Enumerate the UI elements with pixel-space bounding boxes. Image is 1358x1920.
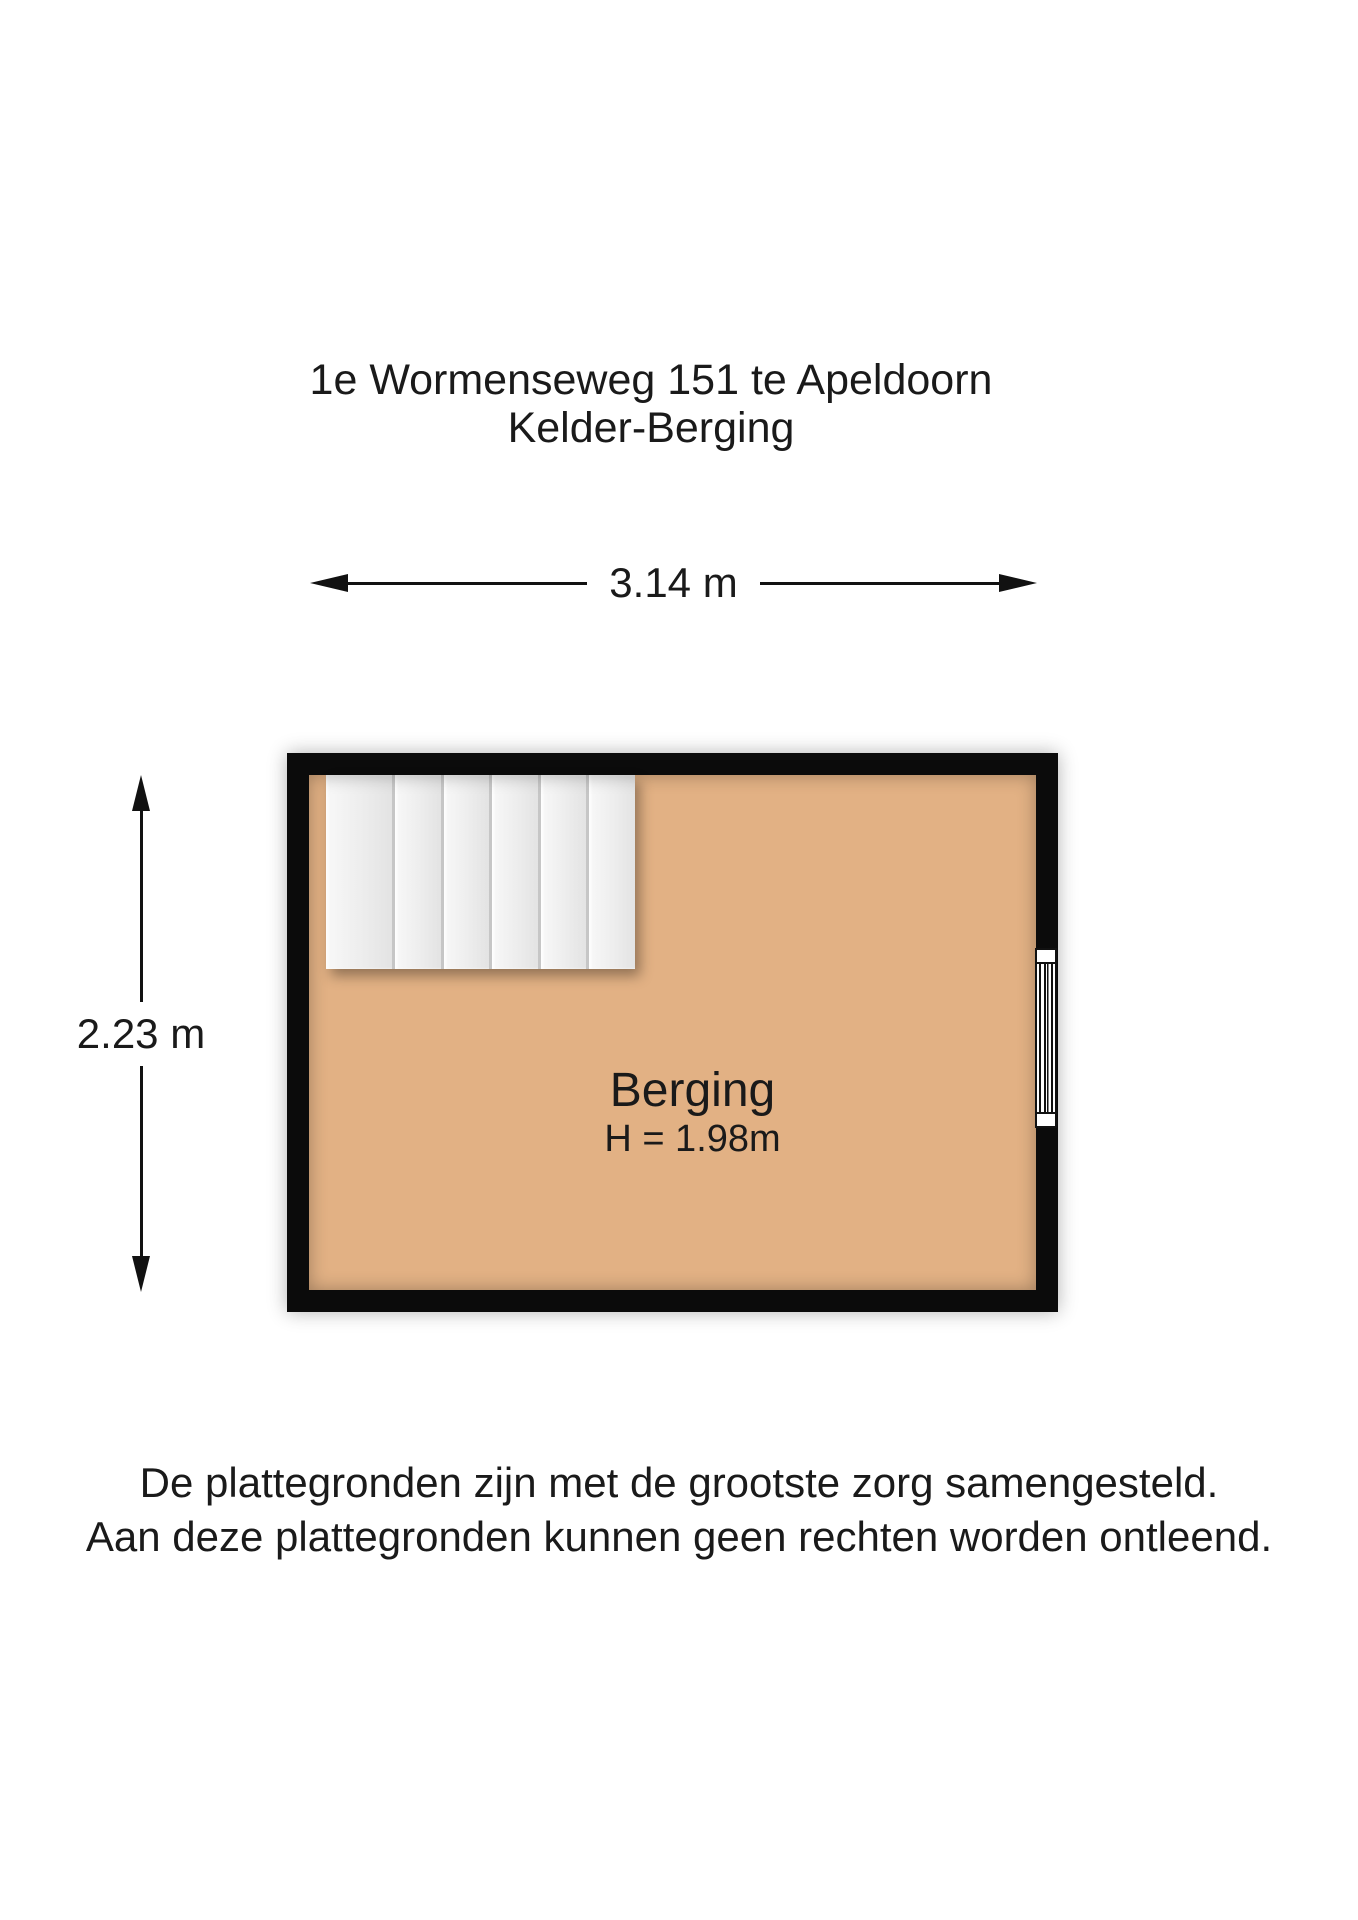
dimension-line [140,811,143,1002]
height-dimension: 2.23 m [61,775,221,1292]
title-address: 1e Wormenseweg 151 te Apeldoorn [0,356,1302,404]
width-dimension-label: 3.14 m [609,559,737,607]
disclaimer: De plattegronden zijn met de grootste zo… [0,1456,1358,1564]
width-dimension: 3.14 m [310,559,1037,607]
floorplan-page: 1e Wormenseweg 151 te Apeldoorn Kelder-B… [0,0,1358,1920]
room-label: Berging H = 1.98m [309,1065,1036,1161]
disclaimer-line-1: De plattegronden zijn met de grootste zo… [0,1456,1358,1510]
window-glazing [1039,964,1053,1112]
stairs [326,775,635,969]
height-dimension-label: 2.23 m [77,1010,205,1058]
floorplan-title: 1e Wormenseweg 151 te Apeldoorn Kelder-B… [0,356,1302,452]
room-ceiling-height: H = 1.98m [349,1117,1036,1161]
arrow-left-icon [310,574,348,592]
dimension-line [140,1066,143,1257]
window-frame-cap [1037,950,1055,964]
dimension-line [348,582,587,585]
room-berging: Berging H = 1.98m [287,753,1058,1312]
title-floor-name: Kelder-Berging [0,404,1302,452]
stair-tread [444,775,493,969]
stair-tread [395,775,444,969]
window-frame-cap [1037,1112,1055,1126]
arrow-right-icon [999,574,1037,592]
arrow-down-icon [132,1256,150,1292]
window [1035,948,1057,1128]
stair-tread [541,775,590,969]
disclaimer-line-2: Aan deze plattegronden kunnen geen recht… [0,1510,1358,1564]
stair-tread [326,775,395,969]
stair-tread [589,775,635,969]
stair-tread [492,775,541,969]
dimension-line [760,582,999,585]
arrow-up-icon [132,775,150,811]
room-name: Berging [349,1065,1036,1117]
